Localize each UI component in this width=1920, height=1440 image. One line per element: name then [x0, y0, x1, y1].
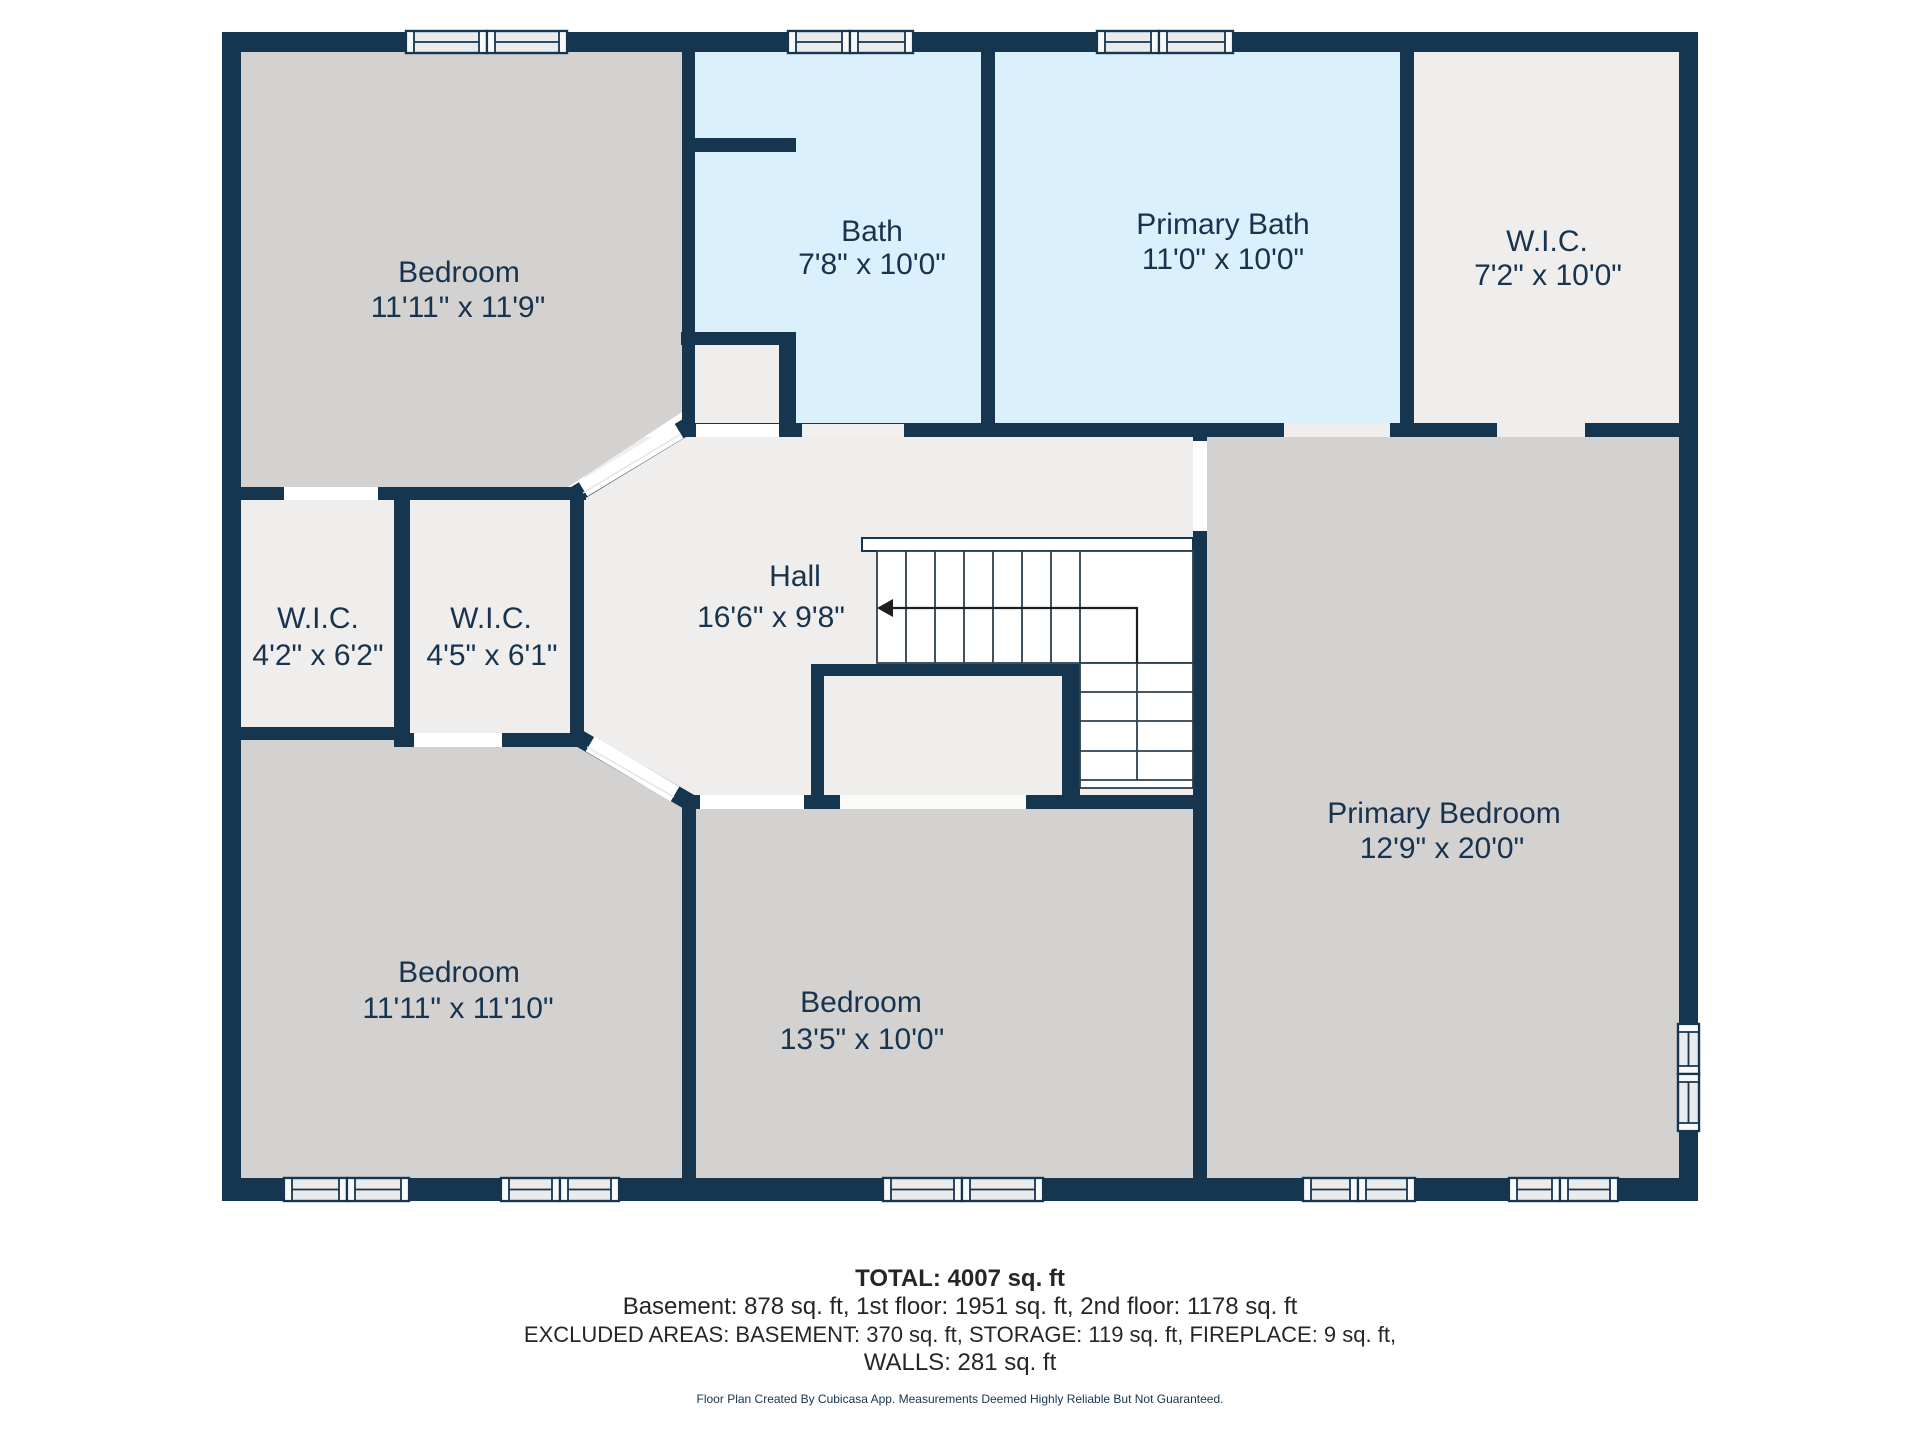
svg-text:TOTAL: 4007 sq. ft: TOTAL: 4007 sq. ft — [855, 1265, 1065, 1292]
svg-text:12'9" x 20'0": 12'9" x 20'0" — [1360, 832, 1525, 865]
svg-text:Bedroom: Bedroom — [800, 986, 922, 1019]
svg-text:W.I.C.: W.I.C. — [1506, 225, 1588, 258]
svg-text:11'11" x 11'9": 11'11" x 11'9" — [371, 291, 546, 324]
svg-text:Bedroom: Bedroom — [398, 256, 520, 289]
svg-text:Basement: 878 sq. ft, 1st floo: Basement: 878 sq. ft, 1st floor: 1951 sq… — [623, 1293, 1298, 1320]
svg-text:Primary Bedroom: Primary Bedroom — [1327, 797, 1560, 830]
svg-text:16'6" x 9'8": 16'6" x 9'8" — [697, 601, 845, 634]
svg-text:W.I.C.: W.I.C. — [277, 602, 359, 635]
svg-text:W.I.C.: W.I.C. — [450, 602, 532, 635]
svg-text:Bedroom: Bedroom — [398, 956, 520, 989]
svg-text:11'0" x 10'0": 11'0" x 10'0" — [1142, 243, 1304, 276]
svg-text:EXCLUDED AREAS: BASEMENT: 370: EXCLUDED AREAS: BASEMENT: 370 sq. ft, ST… — [524, 1322, 1396, 1347]
svg-text:Bath: Bath — [841, 215, 903, 248]
svg-text:Hall: Hall — [769, 560, 821, 593]
svg-text:7'2" x 10'0": 7'2" x 10'0" — [1474, 259, 1622, 292]
svg-text:13'5" x 10'0": 13'5" x 10'0" — [780, 1023, 945, 1056]
svg-text:11'11" x 11'10": 11'11" x 11'10" — [362, 992, 553, 1025]
svg-text:7'8" x 10'0": 7'8" x 10'0" — [798, 248, 946, 281]
svg-text:4'2" x 6'2": 4'2" x 6'2" — [252, 639, 383, 672]
svg-text:Floor Plan Created By Cubicasa: Floor Plan Created By Cubicasa App. Meas… — [697, 1392, 1224, 1406]
svg-text:Primary Bath: Primary Bath — [1136, 208, 1309, 241]
svg-text:4'5" x 6'1": 4'5" x 6'1" — [426, 639, 557, 672]
svg-text:WALLS: 281 sq. ft: WALLS: 281 sq. ft — [864, 1349, 1057, 1376]
